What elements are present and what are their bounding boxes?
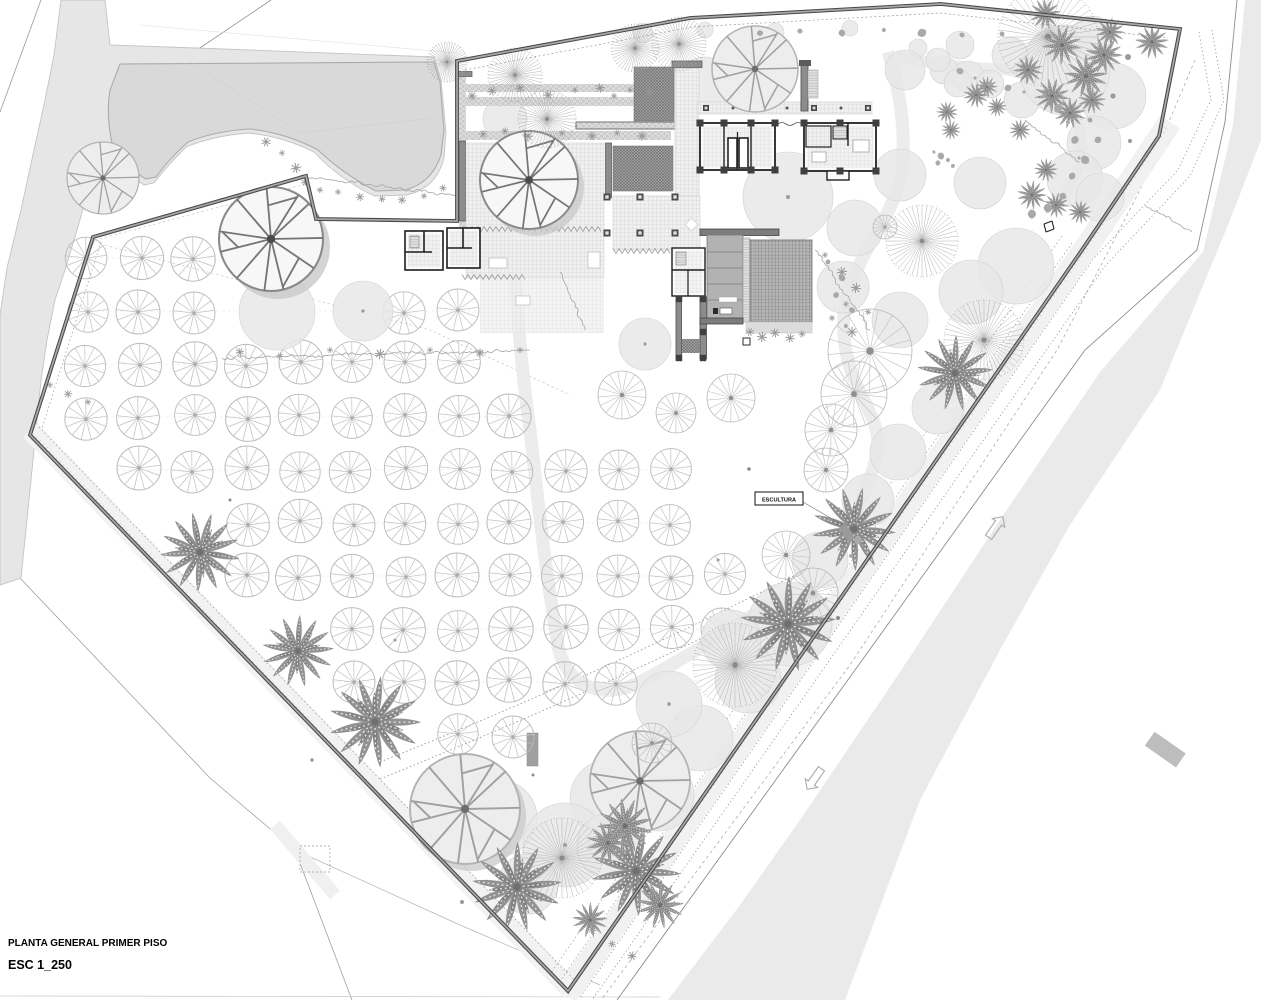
svg-text:ESCULTURA: ESCULTURA: [762, 498, 796, 504]
svg-text:PLANTA GENERAL PRIMER PISO: PLANTA GENERAL PRIMER PISO: [8, 938, 167, 949]
svg-text:ESC 1_250: ESC 1_250: [8, 958, 72, 972]
